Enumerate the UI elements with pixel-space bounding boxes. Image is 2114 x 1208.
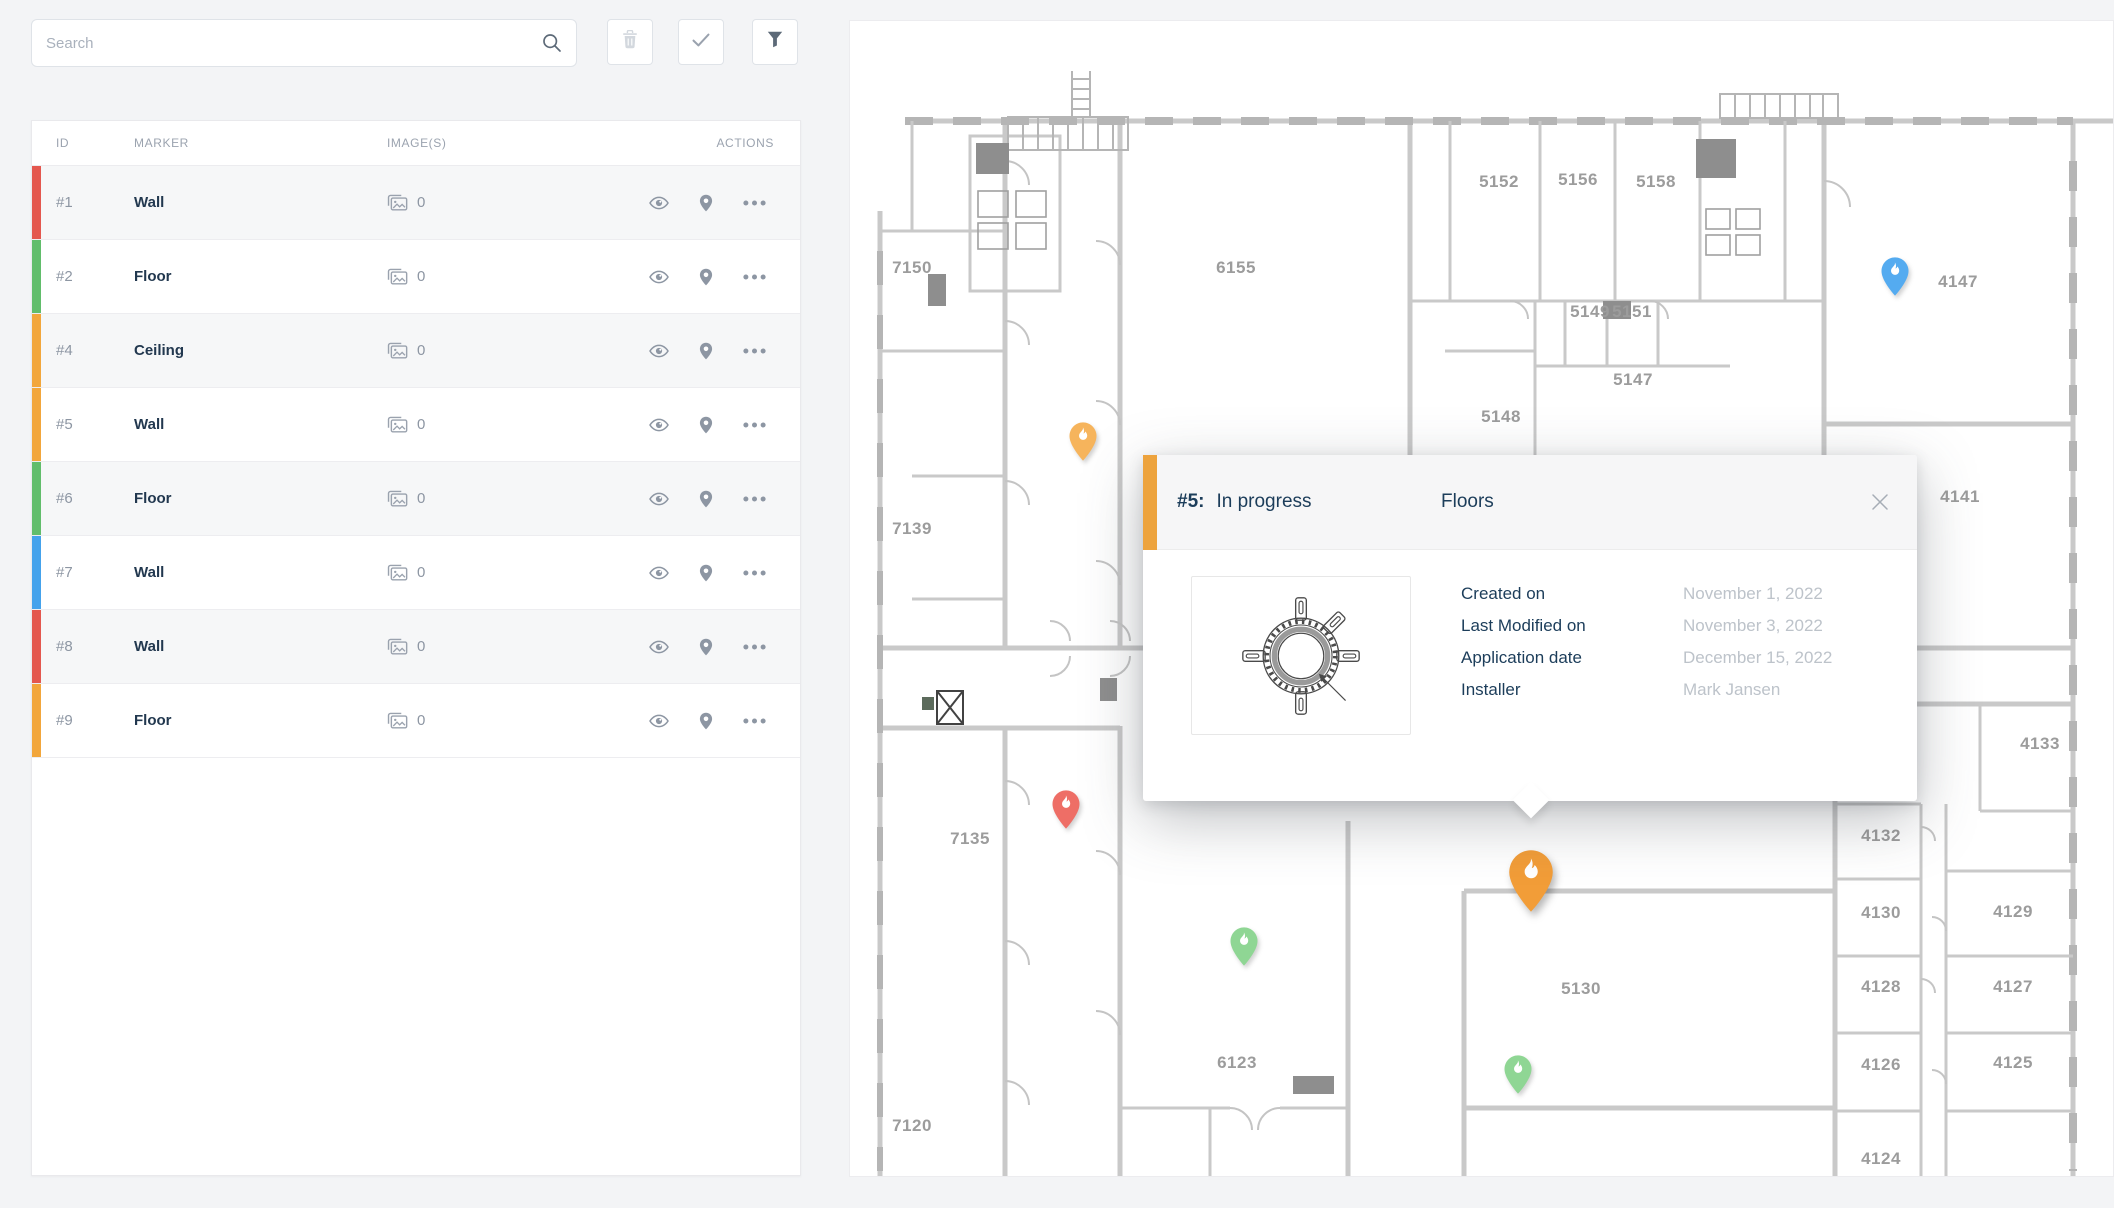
table-row[interactable]: #5Wall0 xyxy=(32,388,800,462)
room-label-4133: 4133 xyxy=(2020,734,2060,753)
marker-id: #2 xyxy=(56,268,134,285)
confirm-button[interactable] xyxy=(678,19,724,65)
ellipsis-icon[interactable] xyxy=(743,644,766,650)
popup-header: #5: In progress Floors xyxy=(1143,455,1917,550)
image-count: 0 xyxy=(417,712,425,729)
marker-name: Wall xyxy=(134,564,387,581)
map-pin-icon[interactable] xyxy=(699,416,713,434)
eye-icon[interactable] xyxy=(649,566,669,580)
room-label-5148: 5148 xyxy=(1481,407,1521,426)
marker-color-bar xyxy=(32,610,41,683)
map-pin-icon[interactable] xyxy=(699,564,713,582)
image-count: 0 xyxy=(417,268,425,285)
table-row[interactable]: #9Floor0 xyxy=(32,684,800,758)
room-label-4130: 4130 xyxy=(1861,903,1901,922)
marker-color-bar xyxy=(32,240,41,313)
column-header-images: IMAGE(S) xyxy=(387,136,615,150)
room-label-4127: 4127 xyxy=(1993,977,2033,996)
ellipsis-icon[interactable] xyxy=(743,200,766,206)
popup-accent-bar xyxy=(1143,455,1157,550)
field-label: Last Modified on xyxy=(1461,616,1683,636)
photos-icon xyxy=(387,194,408,211)
flame-pin-icon[interactable] xyxy=(1880,256,1910,297)
table-body: #1Wall0#2Floor0#4Ceiling0#5Wall0#6Floor0… xyxy=(32,166,800,758)
photos-icon xyxy=(387,712,408,729)
toolbar xyxy=(31,19,801,67)
room-label-7150: 7150 xyxy=(892,258,932,277)
table-row[interactable]: #7Wall0 xyxy=(32,536,800,610)
popup-field-row: Last Modified onNovember 3, 2022 xyxy=(1461,616,1832,636)
map-pin-icon[interactable] xyxy=(699,194,713,212)
map-pin-icon[interactable] xyxy=(699,490,713,508)
ellipsis-icon[interactable] xyxy=(743,422,766,428)
marker-id: #5 xyxy=(56,416,134,433)
filter-icon xyxy=(767,31,783,53)
ellipsis-icon[interactable] xyxy=(743,348,766,354)
photos-icon xyxy=(387,490,408,507)
marker-id: #7 xyxy=(56,564,134,581)
marker-name: Wall xyxy=(134,194,387,211)
marker-id: #4 xyxy=(56,342,134,359)
room-label-5130: 5130 xyxy=(1561,979,1601,998)
room-label-6123: 6123 xyxy=(1217,1053,1257,1072)
room-label-7135: 7135 xyxy=(950,829,990,848)
field-value: December 15, 2022 xyxy=(1683,648,1832,668)
floorplan-panel[interactable]: 7150615551525156515851495151514751484147… xyxy=(849,20,2114,1177)
eye-icon[interactable] xyxy=(649,640,669,654)
marker-id: #9 xyxy=(56,712,134,729)
flame-pin-icon[interactable] xyxy=(1051,789,1081,830)
room-label-5151: 5151 xyxy=(1612,302,1652,321)
ellipsis-icon[interactable] xyxy=(743,570,766,576)
ring-gasket-illustration xyxy=(1238,593,1364,719)
room-label-4141: 4141 xyxy=(1940,487,1980,506)
room-label-4125: 4125 xyxy=(1993,1053,2033,1072)
marker-color-bar xyxy=(32,314,41,387)
table-header: ID MARKER IMAGE(S) ACTIONS xyxy=(32,121,800,166)
ellipsis-icon[interactable] xyxy=(743,496,766,502)
marker-color-bar xyxy=(32,462,41,535)
popup-field-row: InstallerMark Jansen xyxy=(1461,680,1832,700)
ellipsis-icon[interactable] xyxy=(743,718,766,724)
photos-icon xyxy=(387,638,408,655)
search-box xyxy=(31,19,577,67)
marker-color-bar xyxy=(32,684,41,757)
check-icon xyxy=(692,33,710,52)
room-label-6155: 6155 xyxy=(1216,258,1256,277)
trash-icon xyxy=(622,30,638,54)
table-row[interactable]: #6Floor0 xyxy=(32,462,800,536)
image-count: 0 xyxy=(417,564,425,581)
eye-icon[interactable] xyxy=(649,418,669,432)
image-count: 0 xyxy=(417,638,425,655)
field-label: Created on xyxy=(1461,584,1683,604)
elevator xyxy=(937,691,963,724)
image-count: 0 xyxy=(417,342,425,359)
eye-icon[interactable] xyxy=(649,714,669,728)
search-input[interactable] xyxy=(32,35,542,52)
field-label: Installer xyxy=(1461,680,1683,700)
table-row[interactable]: #4Ceiling0 xyxy=(32,314,800,388)
room-label-4147: 4147 xyxy=(1938,272,1978,291)
room-label-7120: 7120 xyxy=(892,1116,932,1135)
marker-thumbnail xyxy=(1191,576,1411,735)
field-label: Application date xyxy=(1461,648,1683,668)
photos-icon xyxy=(387,416,408,433)
marker-name: Ceiling xyxy=(134,342,387,359)
table-row[interactable]: #2Floor0 xyxy=(32,240,800,314)
field-value: November 1, 2022 xyxy=(1683,584,1823,604)
room-label-5152: 5152 xyxy=(1479,172,1519,191)
table-row[interactable]: #8Wall0 xyxy=(32,610,800,684)
room-label-5158: 5158 xyxy=(1636,172,1676,191)
popup-field-row: Application dateDecember 15, 2022 xyxy=(1461,648,1832,668)
map-pin-icon[interactable] xyxy=(699,638,713,656)
marker-color-bar xyxy=(32,536,41,609)
column-header-id: ID xyxy=(56,136,134,150)
room-label-7139: 7139 xyxy=(892,519,932,538)
field-value: Mark Jansen xyxy=(1683,680,1780,700)
marker-id: #8 xyxy=(56,638,134,655)
map-pin-icon[interactable] xyxy=(699,712,713,730)
marker-name: Wall xyxy=(134,638,387,655)
room-label-4128: 4128 xyxy=(1861,977,1901,996)
filter-button[interactable] xyxy=(752,19,798,65)
marker-popup: #5: In progress Floors xyxy=(1143,455,1917,801)
selected-flame-pin-icon[interactable] xyxy=(1507,848,1555,914)
flame-pin-icon[interactable] xyxy=(1068,421,1098,462)
marker-color-bar xyxy=(32,388,41,461)
marker-name: Floor xyxy=(134,712,387,729)
popup-status: In progress xyxy=(1216,491,1311,513)
room-label-4126: 4126 xyxy=(1861,1055,1901,1074)
popup-fields: Created onNovember 1, 2022Last Modified … xyxy=(1461,584,1832,735)
photos-icon xyxy=(387,564,408,581)
room-label-5156: 5156 xyxy=(1558,170,1598,189)
eye-icon[interactable] xyxy=(649,492,669,506)
popup-body: Created onNovember 1, 2022Last Modified … xyxy=(1143,550,1917,735)
marker-name: Wall xyxy=(134,416,387,433)
stairs xyxy=(1008,71,1838,150)
room-label-4129: 4129 xyxy=(1993,902,2033,921)
marker-name: Floor xyxy=(134,268,387,285)
photos-icon xyxy=(387,268,408,285)
room-label-5149: 5149 xyxy=(1570,302,1610,321)
close-icon[interactable] xyxy=(1869,491,1891,513)
app-root: ID MARKER IMAGE(S) ACTIONS #1Wall0#2Floo… xyxy=(0,0,2114,1208)
image-count: 0 xyxy=(417,194,425,211)
photos-icon xyxy=(387,342,408,359)
eye-icon[interactable] xyxy=(649,344,669,358)
image-count: 0 xyxy=(417,416,425,433)
room-label-4124: 4124 xyxy=(1861,1149,1901,1168)
column-header-actions: ACTIONS xyxy=(615,136,800,150)
map-pin-icon[interactable] xyxy=(699,342,713,360)
eye-icon[interactable] xyxy=(649,270,669,284)
column-header-marker: MARKER xyxy=(134,136,387,150)
popup-marker-id: #5: xyxy=(1177,491,1204,513)
room-label-5147: 5147 xyxy=(1613,370,1653,389)
marker-name: Floor xyxy=(134,490,387,507)
map-pin-icon[interactable] xyxy=(699,268,713,286)
flame-pin-icon[interactable] xyxy=(1503,1054,1533,1095)
marker-table: ID MARKER IMAGE(S) ACTIONS #1Wall0#2Floo… xyxy=(31,120,801,1176)
marker-list-panel: ID MARKER IMAGE(S) ACTIONS #1Wall0#2Floo… xyxy=(31,19,801,1176)
table-row[interactable]: #1Wall0 xyxy=(32,166,800,240)
delete-button[interactable] xyxy=(607,19,653,65)
eye-icon[interactable] xyxy=(649,196,669,210)
marker-id: #1 xyxy=(56,194,134,211)
popup-category: Floors xyxy=(1441,491,1494,513)
search-icon xyxy=(542,33,562,53)
field-value: November 3, 2022 xyxy=(1683,616,1823,636)
marker-color-bar xyxy=(32,166,41,239)
room-label-4132: 4132 xyxy=(1861,826,1901,845)
image-count: 0 xyxy=(417,490,425,507)
ellipsis-icon[interactable] xyxy=(743,274,766,280)
marker-id: #6 xyxy=(56,490,134,507)
popup-field-row: Created onNovember 1, 2022 xyxy=(1461,584,1832,604)
flame-pin-icon[interactable] xyxy=(1229,926,1259,967)
